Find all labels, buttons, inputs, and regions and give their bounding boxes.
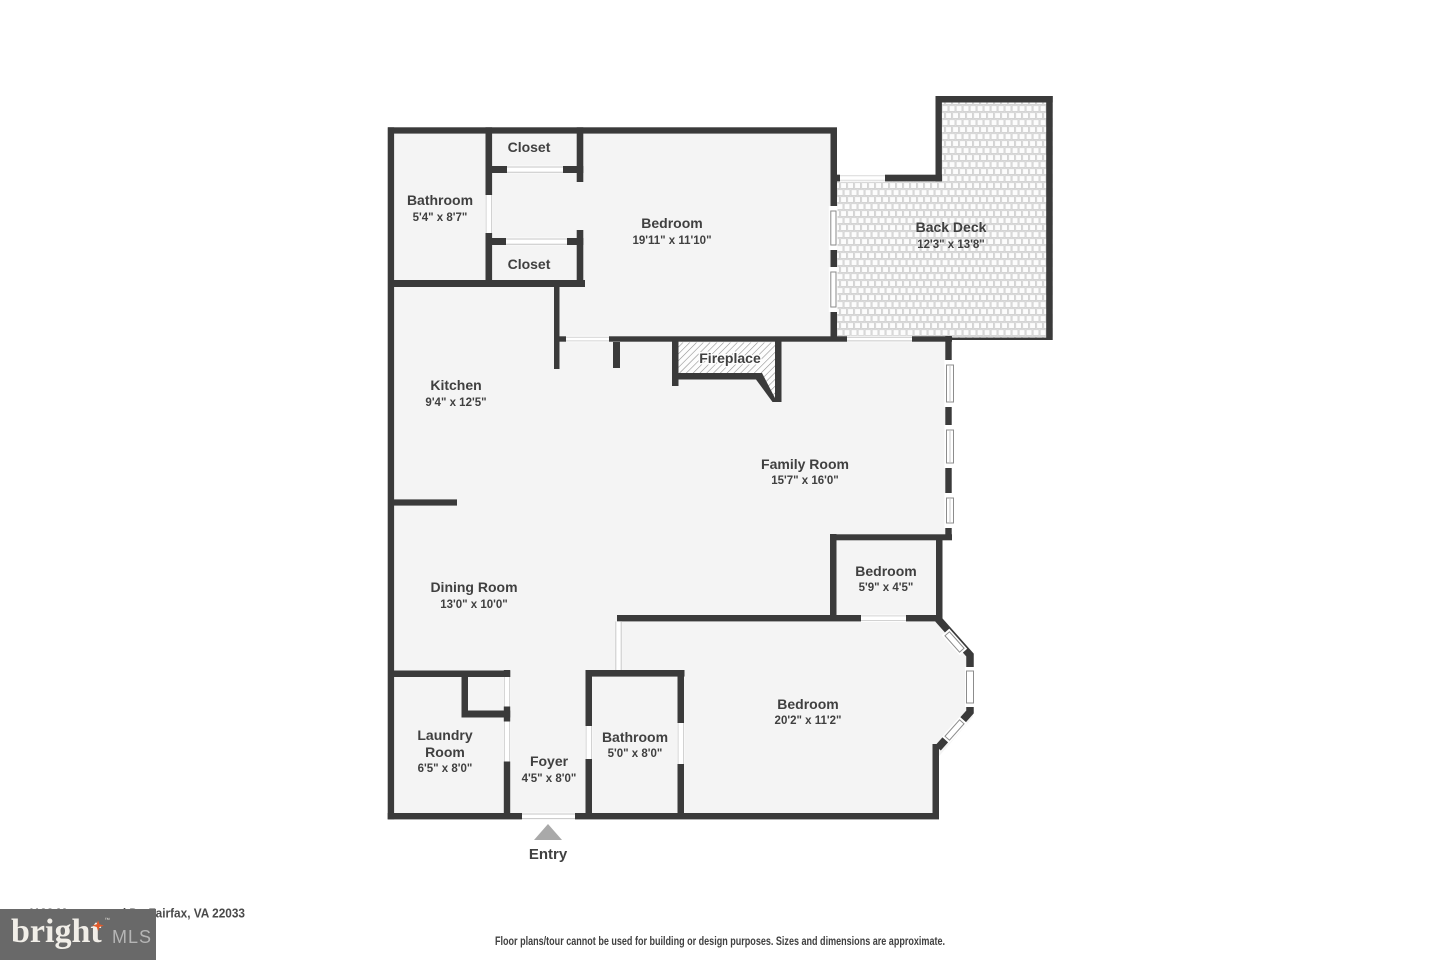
svg-text:Laundry: Laundry: [417, 727, 472, 743]
svg-text:Bathroom: Bathroom: [407, 192, 473, 208]
svg-text:20'2" x 11'2": 20'2" x 11'2": [775, 715, 842, 727]
svg-text:Fireplace: Fireplace: [699, 350, 761, 366]
svg-text:Bedroom: Bedroom: [777, 696, 838, 712]
svg-text:Back Deck: Back Deck: [916, 219, 987, 235]
svg-text:5'0" x 8'0": 5'0" x 8'0": [608, 748, 663, 760]
svg-text:9'4" x 12'5": 9'4" x 12'5": [425, 397, 486, 409]
svg-text:Bedroom: Bedroom: [855, 563, 916, 579]
svg-text:Room: Room: [425, 744, 465, 760]
svg-text:bright: bright: [11, 913, 102, 950]
svg-text:Entry: Entry: [529, 846, 568, 863]
svg-text:Foyer: Foyer: [530, 753, 569, 769]
svg-text:13'0" x 10'0": 13'0" x 10'0": [440, 599, 508, 611]
svg-text:19'11" x 11'10": 19'11" x 11'10": [632, 235, 711, 247]
svg-text:Closet: Closet: [508, 256, 551, 272]
svg-text:™: ™: [105, 918, 111, 924]
svg-text:Floor plans/tour cannot be use: Floor plans/tour cannot be used for buil…: [495, 934, 945, 948]
svg-text:Bedroom: Bedroom: [641, 215, 702, 231]
svg-text:4'5" x 8'0": 4'5" x 8'0": [522, 773, 577, 785]
svg-text:Family Room: Family Room: [761, 456, 849, 472]
svg-text:Bathroom: Bathroom: [602, 729, 668, 745]
svg-text:6'5" x 8'0": 6'5" x 8'0": [418, 763, 473, 775]
svg-text:5'9" x 4'5": 5'9" x 4'5": [859, 582, 914, 594]
svg-text:5'4" x 8'7": 5'4" x 8'7": [413, 212, 468, 224]
svg-text:Closet: Closet: [508, 139, 551, 155]
svg-text:12'3" x 13'8": 12'3" x 13'8": [917, 239, 985, 251]
svg-text:MLS: MLS: [112, 927, 152, 947]
svg-text:Kitchen: Kitchen: [430, 377, 481, 393]
svg-text:Dining Room: Dining Room: [430, 579, 517, 595]
svg-text:15'7" x 16'0": 15'7" x 16'0": [771, 475, 839, 487]
